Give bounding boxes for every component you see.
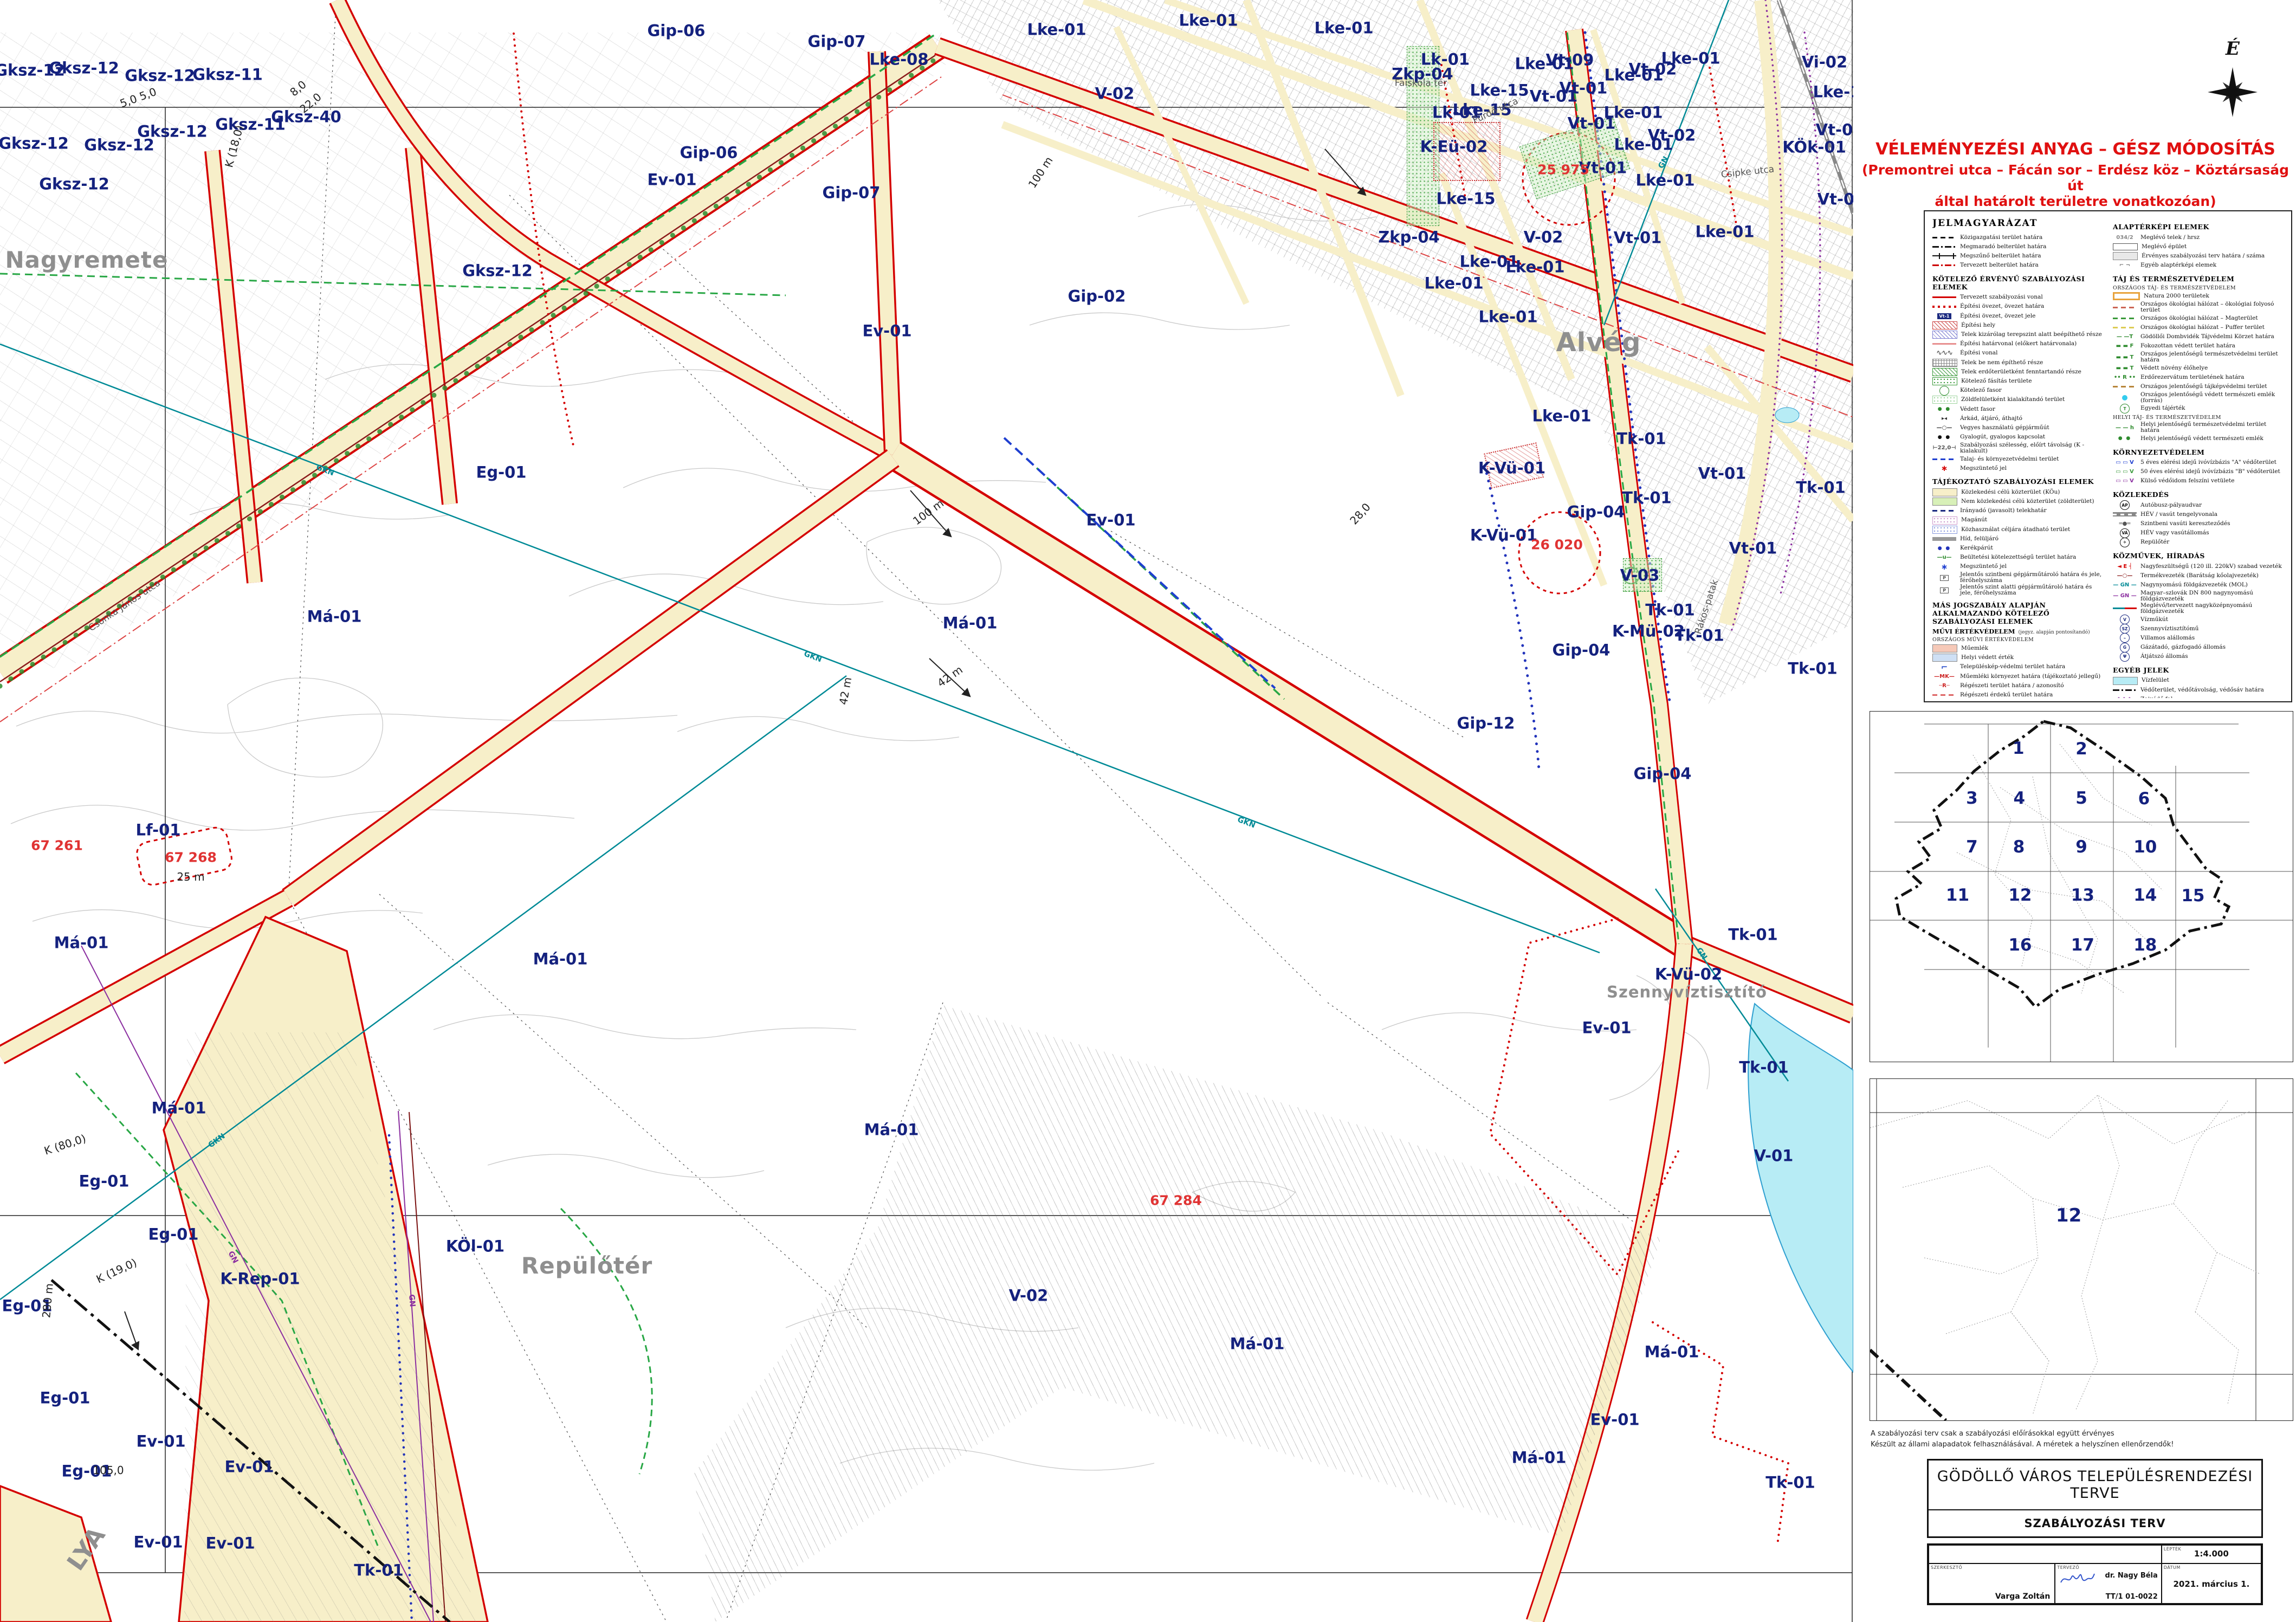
legend-swatch-dash-icon <box>2113 324 2137 332</box>
legend-item: VVízműkút <box>2113 615 2286 624</box>
pipeline-label: GKN <box>207 1132 227 1149</box>
legend-item: Közigazgatási terület határa <box>1932 233 2105 242</box>
legend-swatch-star-icon: ∗ <box>1932 464 1956 473</box>
zone-label: Tk-01 <box>354 1563 403 1579</box>
legend-swatch-txt-icon: — GN — <box>2113 581 2137 589</box>
note-1: A szabályozási terv csak a szabályozási … <box>1871 1429 2288 1439</box>
legend-section-heading: ORSZÁGOS TÁJ- ÉS TERMÉSZETVÉDELEM <box>2113 285 2286 291</box>
legend-swatch-txt-icon: ⌐ ¬ <box>2113 261 2137 269</box>
street-label: Faiskola tér <box>1395 79 1447 88</box>
north-label: É <box>2200 38 2265 60</box>
legend-item-label: Építési vonal <box>1960 350 1998 356</box>
legend-item-label: Repülőtér <box>2140 539 2169 545</box>
legend-swatch-hatch-icon <box>1932 321 1957 329</box>
legend-swatch-txt-icon: — GN — <box>2113 592 2137 600</box>
legend-item: ⌁Villamos alállomás <box>2113 634 2286 642</box>
legend-item: Építési övezet, övezet határa <box>1932 302 2105 311</box>
legend-item: Országos ökológiai hálózat – Puffer terü… <box>2113 323 2286 332</box>
parcel-number-label: 25 975 <box>1537 163 1589 177</box>
legend-item: ▬ ▬ FFokozottan védett terület határa <box>2113 342 2286 351</box>
zone-label: Tk-01 <box>1788 661 1837 677</box>
zone-label: Tk-01 <box>1645 603 1694 618</box>
title-line-1: VÉLEMÉNYEZÉSI ANYAG – GÉSZ MÓDOSÍTÁS <box>1859 140 2292 159</box>
zone-label: Lke-08 <box>869 52 928 68</box>
measurement-label: K (80,0) <box>43 1133 87 1156</box>
legend-swatch-zig-icon: ∿∿∿ <box>2113 695 2137 698</box>
legend-swatch-txt-icon: —u— <box>1932 553 1956 561</box>
legend-item-label: Megmaradó belterület határa <box>1960 244 2046 250</box>
legend-item-label: HÉV vagy vasútállomás <box>2140 530 2209 536</box>
legend-item: Irányadó (javasolt) telekhatár <box>1932 507 2105 515</box>
zone-label: Ev-01 <box>205 1536 255 1552</box>
zone-label: Vt-01 <box>1568 116 1616 132</box>
date-label: DÁTUM <box>2164 1565 2181 1570</box>
zone-label: Eg-01 <box>40 1391 90 1406</box>
overview-sheet-number: 2 <box>2075 739 2087 759</box>
zone-label: Tk-01 <box>1616 431 1666 447</box>
legend-item-label: Nagynyomású földgázvezeték (MOL) <box>2140 582 2248 588</box>
overview-sheet-number: 11 <box>1946 886 1969 905</box>
editor-name: Varga Zoltán <box>1995 1592 2050 1601</box>
legend-section-heading: TÁJ ÉS TERMÉSZETVÉDELEM <box>2113 275 2286 283</box>
measurement-label: K (19,0) <box>95 1257 139 1285</box>
editor-cell: SZERKESZTŐ Varga Zoltán <box>1929 1563 2055 1604</box>
legend-item-label: Településkép-védelmi terület határa <box>1960 664 2065 670</box>
legend-item-label: Építési övezet, övezet jele <box>1960 313 2035 319</box>
legend-swatch-circ-icon: ⌁ <box>2113 634 2137 642</box>
legend-item-label: Nagyfeszültségű (120 ill. 220kV) szabad … <box>2140 564 2282 570</box>
overview-sheet-number: 5 <box>2075 789 2087 808</box>
legend-item: ▬ ▬ TOrszágos jelentőségű természetvédel… <box>2113 351 2286 363</box>
legend-item: Natura 2000 területek <box>2113 292 2286 301</box>
legend-item: Műemlék <box>1932 644 2105 652</box>
legend-item: SZSzennyvíztisztítómű <box>2113 624 2286 633</box>
legend-item: Országos ökológiai hálózat – Magterület <box>2113 314 2286 322</box>
legend-item-label: Villamos alállomás <box>2140 635 2195 641</box>
zone-label: KÖl-01 <box>446 1239 505 1255</box>
legend-item-label: Jelentős szintbeni gépjárműtároló határa… <box>1960 572 2105 584</box>
legend-swatch-fill-icon <box>1932 488 1957 496</box>
legend-item: Megszűnő belterület határa <box>1932 251 2105 260</box>
plan-sheet: Gksz-12Gksz-12Gksz-12Gksz-12Gksz-12Gksz-… <box>0 0 2296 1622</box>
zone-label: Gip-06 <box>648 23 706 39</box>
main-map: Gksz-12Gksz-12Gksz-12Gksz-12Gksz-12Gksz-… <box>0 0 1853 1622</box>
legend-swatch-txt-icon: —MK— <box>1932 673 1956 681</box>
legend-item: Megmaradó belterület határa <box>1932 242 2105 251</box>
pipeline-label: GN <box>408 1294 416 1307</box>
pipeline-label: GKN <box>803 650 823 663</box>
legend-item-label: Zajvédő fal <box>2140 696 2172 698</box>
legend-item: Tervezett szabályozási vonal <box>1932 293 2105 302</box>
legend-box: JELMAGYARÁZAT Közigazgatási terület hatá… <box>1924 210 2292 702</box>
designer-name: dr. Nagy Béla <box>2105 1572 2158 1580</box>
legend-item-label: Építési hely <box>1961 322 1995 328</box>
legend-swatch-txt-icon: ▭ ▭ V <box>2113 468 2137 476</box>
legend-item-label: Meglévő épület <box>2142 244 2187 250</box>
legend-swatch-circ-icon: AP <box>2113 501 2137 509</box>
legend-item-label: Műemlék <box>1961 645 1988 651</box>
overview-sheet-number: 17 <box>2071 935 2094 955</box>
legend-item: ▭ ▭ V50 éves elérési idejű ivóvízbázis "… <box>2113 468 2286 476</box>
zone-label: Ev-01 <box>224 1459 274 1475</box>
legend-swatch-dotgrid-icon <box>1932 377 1957 385</box>
legend-swatch-rail-icon <box>2113 510 2137 519</box>
legend-swatch-dash-icon <box>1932 691 1956 698</box>
legend-swatch-hatch-icon <box>1932 368 1957 376</box>
legend-item-label: Autóbusz-pályaudvar <box>2140 502 2202 508</box>
zone-label: Zkp-04 <box>1378 230 1439 245</box>
legend-item: Védőterület, védőtávolság, védősáv határ… <box>2113 686 2286 694</box>
zone-label: Vt-01 <box>1530 89 1578 105</box>
measurement-label: 100 m <box>1026 155 1055 190</box>
zone-label: V-01 <box>1754 1148 1794 1164</box>
zone-label: Tk-01 <box>1765 1475 1815 1491</box>
note-2: Készült az állami alapadatok felhasználá… <box>1871 1439 2288 1450</box>
legend-swatch-fill-icon <box>1932 644 1957 652</box>
zone-label: K-Vü-01 <box>1478 461 1545 476</box>
legend-item: ● ●Gyalogút, gyalogos kapcsolat <box>1932 433 2105 442</box>
legend-item-label: Talaj- és környezetvédelmi terület <box>1960 456 2059 462</box>
legend-item-label: Jelentős szint alatti gépjárműtároló hat… <box>1960 584 2105 596</box>
legend-item: ▭ ▭ VKülső védőidom felszíni vetülete <box>2113 477 2286 486</box>
legend-item: ● ●Védett fasor <box>1932 405 2105 413</box>
legend-item: Tervezett belterület határa <box>1932 261 2105 270</box>
legend-item-label: Árkád, átjáró, áthajtó <box>1960 416 2022 422</box>
legend-item-label: Közlekedési célú közterület (KÖu) <box>1961 489 2060 495</box>
legend-item-label: Gyalogút, gyalogos kapcsolat <box>1960 434 2045 440</box>
legend-swatch-ticks-icon <box>1932 252 1956 260</box>
legend-item: Kötelező fasor <box>1932 386 2105 395</box>
legend-item: PJelentős szint alatti gépjárműtároló ha… <box>1932 584 2105 596</box>
zone-label: Lke-15 <box>1470 83 1529 99</box>
measurement-label: 25 m <box>177 871 204 882</box>
detail-sheet-number: 12 <box>2056 1205 2081 1226</box>
legend-item: ═●═Szintbeni vasúti kereszteződés <box>2113 519 2286 528</box>
legend-swatch-txt-icon: •• R •• <box>2113 373 2137 382</box>
legend-item: ∗Megszüntető jel <box>1932 563 2105 571</box>
zone-label: Eg-01 <box>476 465 527 481</box>
overview-sheet-number: 15 <box>2181 886 2204 906</box>
legend-swatch-dots-icon: ● ● <box>1932 433 1956 441</box>
legend-item: APAutóbusz-pályaudvar <box>2113 501 2286 509</box>
legend-item-label: Megszüntető jel <box>1960 564 2007 570</box>
scale-value: 1:4.000 <box>2162 1549 2261 1559</box>
legend-item: •• R ••Erdőrezervátum területének határa <box>2113 373 2286 382</box>
zone-label: Má-01 <box>533 952 588 967</box>
legend-item-label: Szintbeni vasúti kereszteződés <box>2140 521 2230 527</box>
zone-label: Lke-14 <box>1813 85 1853 100</box>
zone-label: K-Vü-01 <box>1470 528 1537 544</box>
legend-item-label: Kerékpárút <box>1960 545 1993 551</box>
zone-label: V-02 <box>1009 1288 1049 1304</box>
overview-sheet-number: 13 <box>2071 886 2094 905</box>
legend-swatch-circ-icon: SZ <box>2113 625 2137 633</box>
legend-item: Telek erdőterületként fenntartandó része <box>1932 367 2105 376</box>
zone-label: Gksz-12 <box>462 263 533 279</box>
signature-icon <box>2059 1568 2097 1588</box>
legend-item-label: 50 éves elérési idejű ivóvízbázis "B" vé… <box>2140 469 2280 475</box>
compass-icon <box>2200 60 2265 125</box>
place-label: LYA <box>63 1523 109 1575</box>
measurement-label: 5,0 5,0 <box>119 86 158 109</box>
zone-label: Vt-01 <box>1614 230 1662 246</box>
legend-item: ΨÁtjátszó állomás <box>2113 652 2286 661</box>
zone-label: Gip-12 <box>1457 716 1515 732</box>
overview-sheet-number: 1 <box>2013 739 2025 758</box>
legend-swatch-dots-icon: ● ● <box>1932 544 1956 552</box>
legend-item-label: Közhasználat céljára átadható terület <box>1961 527 2070 533</box>
legend-swatch-circ-icon: VÁ <box>2113 529 2137 537</box>
plan-title: SZABÁLYOZÁSI TERV <box>1929 1510 2261 1536</box>
legend-item-label: Vegyes használatú gépjárműút <box>1960 425 2049 431</box>
document-title: VÉLEMÉNYEZÉSI ANYAG – GÉSZ MÓDOSÍTÁS (Pr… <box>1859 140 2292 209</box>
legend-item: Helyi védett érték <box>1932 654 2105 662</box>
disclaimer-notes: A szabályozási terv csak a szabályozási … <box>1871 1429 2288 1450</box>
legend-item-label: Országos ökológiai hálózat – ökológiai f… <box>2140 301 2286 313</box>
zone-label: Lke-01 <box>1478 309 1537 325</box>
zone-label: Gip-06 <box>680 145 738 161</box>
legend-item-label: Szennyvíztisztítómű <box>2140 626 2199 632</box>
legend-item: ✈Repülőtér <box>2113 538 2286 547</box>
designer-license: TT/1 01-0022 <box>2106 1593 2158 1601</box>
legend-item: Telek kizárólag terepszint alatt beépíth… <box>1932 331 2105 339</box>
zone-label: Gip-02 <box>1068 289 1126 305</box>
zone-label: Má-01 <box>943 616 998 631</box>
place-label: Nagyremete <box>5 249 169 272</box>
zone-label: Ev-01 <box>647 172 696 188</box>
zone-label: K-Rep-01 <box>220 1271 300 1287</box>
zone-label: Gip-04 <box>1567 505 1625 520</box>
legend-item: Régészeti érdekű terület határa <box>1932 690 2105 698</box>
legend-section-heading: MŰVI ÉRTÉKVÉDELEM(jegyz. alapján pontosí… <box>1932 628 2105 635</box>
legend-swatch-dash-icon <box>1932 507 1956 515</box>
legend-item-label: Meglévő telek / hrsz <box>2140 235 2200 241</box>
legend-section-heading: HELYI TÁJ- ÉS TERMÉSZETVÉDELEM <box>2113 415 2286 421</box>
legend-swatch-circ-icon: T <box>2113 405 2137 413</box>
legend-item: Nem közlekedési célú közterület (zöldter… <box>1932 497 2105 506</box>
parcel-number-label: 26 020 <box>1531 538 1583 552</box>
date-value: 2021. március 1. <box>2162 1579 2261 1589</box>
zone-label: Lke-01 <box>1635 173 1694 189</box>
legend-item-label: Kötelező fásítás területe <box>1961 378 2032 384</box>
legend-item-label: Meglévő/tervezett nagyközépnyomású földg… <box>2140 603 2286 615</box>
measurement-label: 105,0 <box>93 1465 124 1476</box>
zone-label: Lke-01 <box>1314 21 1373 36</box>
overview-sheet-number: 16 <box>2008 935 2032 955</box>
legend-item-label: Érvényes szabályozási terv határa / szám… <box>2142 253 2265 259</box>
legend-item: Meglévő/tervezett nagyközépnyomású földg… <box>2113 603 2286 615</box>
zone-label: Ev-01 <box>862 324 911 339</box>
legend-swatch-dash-icon <box>2113 314 2137 322</box>
legend-item: —○—Vegyes használatú gépjárműút <box>1932 423 2105 432</box>
legend-swatch-dd-icon <box>2113 686 2137 694</box>
legend-item-label: Országos jelentőségű védett természeti e… <box>2140 392 2286 404</box>
legend-item-label: Egyéb alaptérképi elemek <box>2140 262 2216 268</box>
legend-item-label: Építési övezet, övezet határa <box>1960 303 2044 309</box>
legend-item-label: Gödöllői Dombvidék Tájvédelmi Körzet hat… <box>2140 334 2274 340</box>
overview-sheet-number: 4 <box>2014 789 2026 808</box>
legend-item: Zöldfelületként kialakítandó terület <box>1932 396 2105 404</box>
zone-label: Vt-02 <box>1648 128 1696 144</box>
zone-label: Vt-01 <box>1729 541 1777 557</box>
detail-map: 12 <box>1870 1078 2293 1421</box>
legend-item: Közlekedési célú közterület (KÖu) <box>1932 488 2105 496</box>
zone-label: Tk-01 <box>1622 490 1671 506</box>
zone-label: K-Eü-02 <box>1420 139 1488 155</box>
legend-item: ∿∿∿Építési vonal <box>1932 349 2105 358</box>
parcel-number-label: 67 261 <box>31 839 83 852</box>
zone-label: Gksz-12 <box>0 136 69 152</box>
legend-item: ⊢22,0⊣Szabályozási szélesség, előírt táv… <box>1932 442 2105 454</box>
legend-item-label: Telek be nem építhető része <box>1961 360 2043 366</box>
zone-label: Má-01 <box>1645 1345 1699 1360</box>
zone-label: Ev-01 <box>1086 513 1135 528</box>
side-panel: É VÉLEMÉNYEZÉSI ANYAG – GÉSZ MÓDOSÍTÁS (… <box>1853 0 2296 1622</box>
zone-label: V-02 <box>1524 230 1563 245</box>
legend-section-note: (jegyz. alapján pontosítandó) <box>2019 630 2090 635</box>
legend-swatch-zig-icon: ∿∿∿ <box>1932 349 1956 357</box>
legend-swatch-br-icon: ⌐ <box>1932 663 1956 671</box>
legend-item-label: Vízfelület <box>2142 677 2169 683</box>
zone-label: Gip-04 <box>1553 643 1611 658</box>
legend-item: Híd, felüljáró <box>1932 534 2105 543</box>
legend-swatch-dotgrid-icon <box>1932 526 1957 534</box>
legend-swatch-circ-icon: ✈ <box>2113 538 2137 546</box>
legend-swatch-txt-icon: ┄R┄ <box>1932 682 1956 690</box>
legend-title: JELMAGYARÁZAT <box>1932 218 2105 229</box>
legend-column-right: ALAPTÉRKÉPI ELEMEK034/2Meglévő telek / h… <box>2113 218 2286 698</box>
legend-swatch-fill-icon <box>2113 677 2138 685</box>
legend-item: PJelentős szintbeni gépjárműtároló határ… <box>1932 572 2105 584</box>
legend-swatch-dotgrid-icon <box>1932 516 1957 525</box>
legend-item-label: Tervezett belterület határa <box>1960 262 2039 268</box>
legend-item: ⌐ ¬Egyéb alaptérképi elemek <box>2113 261 2286 270</box>
zone-label: Gksz-12 <box>84 138 154 153</box>
legend-item-label: Helyi védett érték <box>1961 655 2014 661</box>
zone-label: Má-01 <box>307 609 362 625</box>
legend-item: — — hHelyi jelentőségű természetvédelmi … <box>2113 422 2286 434</box>
zone-label: V-03 <box>1620 568 1660 584</box>
legend-item: Magánút <box>1932 516 2105 525</box>
legend-item: Vt-1Építési övezet, övezet jele <box>1932 312 2105 320</box>
measurement-label: 28,0 <box>1348 501 1373 526</box>
place-label: Alvég <box>1556 329 1641 356</box>
legend-swatch-txt-icon: —○— <box>2113 572 2137 580</box>
legend-item-label: Egyedi tájérték <box>2140 405 2185 411</box>
empty-cell <box>1929 1545 2162 1563</box>
scale-cell: LÉPTÉK 1:4.000 <box>2162 1545 2261 1563</box>
legend-swatch-circ-icon: G <box>2113 643 2137 651</box>
legend-swatch-fill-icon <box>2113 252 2138 260</box>
legend-item: VÁHÉV vagy vasútállomás <box>2113 529 2286 538</box>
overview-sheet-number: 8 <box>2013 837 2025 857</box>
legend-item: — GN —Nagynyomású földgázvezeték (MOL) <box>2113 580 2286 589</box>
legend-item-label: Közigazgatási terület határa <box>1960 235 2042 241</box>
legend-item-label: Régészeti terület határa / azonosító <box>1960 683 2064 689</box>
legend-item-label: Magánút <box>1961 517 1987 523</box>
legend-item: Talaj- és környezetvédelmi terület <box>1932 455 2105 463</box>
pipeline-label: GN <box>1657 155 1670 170</box>
zone-label: Tk-01 <box>1728 927 1777 943</box>
measurement-label: 42 m <box>838 676 853 706</box>
overview-sheet-number: 6 <box>2138 789 2150 809</box>
legend-swatch-txt-icon: 034/2 <box>2113 234 2137 242</box>
legend-swatch-dots-icon: ● ● <box>1932 405 1956 413</box>
legend-item-label: Védett növény élőhelye <box>2140 365 2208 371</box>
legend-item: —○—Termékvezeték (Barátság kőolajvezeték… <box>2113 571 2286 580</box>
pipeline-label: GKN <box>315 463 335 477</box>
zone-label: Vt-01 <box>1698 466 1747 482</box>
legend-swatch-dotgrid-icon <box>1932 396 1957 404</box>
legend-item-label: Irányadó (javasolt) telekhatár <box>1960 508 2047 514</box>
legend-item: —MK—Műemléki környezet határa (tájékozta… <box>1932 672 2105 681</box>
legend-item: ⌐Településkép-védelmi terület határa <box>1932 663 2105 671</box>
legend-item-label: Telek kizárólag terepszint alatt beépíth… <box>1961 332 2102 338</box>
legend-swatch-circ-icon: Ψ <box>2113 652 2137 661</box>
zone-label: Gksz-12 <box>125 68 195 84</box>
place-label: Szennyvíztisztító <box>1607 985 1767 1000</box>
legend-section-heading: MÁS JOGSZABÁLY ALAPJÁN ALKALMAZANDÓ KÖTE… <box>1932 601 2105 625</box>
pipeline-label: GKN <box>1237 816 1257 829</box>
overview-sheet-numbers: 123456789101112131415161718 <box>1870 712 2293 1062</box>
legend-item-label: Nem közlekedési célú közterület (zöldter… <box>1961 499 2094 505</box>
legend-item: ▬ ▬ TVédett növény élőhelye <box>2113 364 2286 372</box>
measurement-label: 280 m <box>41 1283 55 1319</box>
legend-swatch-dual-icon <box>2113 608 2137 609</box>
legend-item-label: Építési határvonal (előkert határvonala) <box>1960 341 2077 347</box>
legend-item: Közhasználat céljára átadható terület <box>1932 525 2105 534</box>
legend-item: —u—Beültetési kötelezettségű terület hat… <box>1932 553 2105 562</box>
legend-item-label: Beültetési kötelezettségű terület határa <box>1960 554 2076 560</box>
overview-sheet-number: 9 <box>2075 837 2087 857</box>
legend-column-left: JELMAGYARÁZAT Közigazgatási terület hatá… <box>1932 218 2105 698</box>
legend-item: Országos jelentőségű tájképvédelmi terül… <box>2113 383 2286 391</box>
legend-swatch-box2-icon <box>2113 292 2140 300</box>
legend-section-heading: TÁJÉKOZTATÓ SZABÁLYOZÁSI ELEMEK <box>1932 477 2105 486</box>
zone-label: Lke-01 <box>1179 13 1238 29</box>
zone-label: Lf-01 <box>136 823 181 838</box>
legend-swatch-star-icon: ∗ <box>1932 563 1956 571</box>
legend-item-label: Zöldfelületként kialakítandó terület <box>1961 397 2065 403</box>
legend-item-label: Műemléki környezet határa (tájékoztató j… <box>1960 674 2100 680</box>
measurement-label: 100 m <box>911 497 946 527</box>
legend-swatch-dash-icon <box>1932 234 1956 242</box>
legend-swatch-pbox-icon: P <box>1932 574 1956 582</box>
legend-swatch-sol-icon <box>1932 340 1956 348</box>
legend-section-heading: KÖRNYEZETVÉDELEM <box>2113 448 2286 456</box>
legend-item-label: Külső védőidom felszíni vetülete <box>2140 478 2235 484</box>
legend-item-label: Védett fasor <box>1960 406 1995 412</box>
legend-item-label: Telek erdőterületként fenntartandó része <box>1961 369 2081 375</box>
legend-item: Országos jelentőségű védett természeti e… <box>2113 392 2286 404</box>
legend-item-label: Helyi jelentőségű védett természeti emlé… <box>2140 436 2263 442</box>
legend-item-label: Fokozottan védett terület határa <box>2140 343 2235 349</box>
legend-item-label: Magyar–szlovák DN 800 nagynyomású földgá… <box>2140 590 2286 602</box>
legend-item: ● ●Helyi jelentőségű védett természeti e… <box>2113 434 2286 443</box>
zone-label: Gip-07 <box>808 34 866 50</box>
legend-item: Érvényes szabályozási terv határa / szám… <box>2113 251 2286 260</box>
zone-label: Lke-01 <box>1505 260 1564 275</box>
street-label: Csonka János utca <box>87 579 162 634</box>
zone-label: Vt-02 <box>1818 192 1853 208</box>
parcel-number-label: 67 268 <box>165 851 217 864</box>
legend-swatch-txt-icon: —○— <box>1932 424 1956 432</box>
title-block: GÖDÖLLŐ VÁROS TELEPÜLÉSRENDEZÉSI TERVE S… <box>1927 1459 2263 1605</box>
zone-label: Ev-01 <box>136 1434 185 1450</box>
legend-item-label: Helyi jelentőségű természetvédelmi terül… <box>2140 422 2286 434</box>
zone-label: K-Vü-02 <box>1655 967 1722 983</box>
legend-swatch-sol-icon <box>1932 293 1956 301</box>
